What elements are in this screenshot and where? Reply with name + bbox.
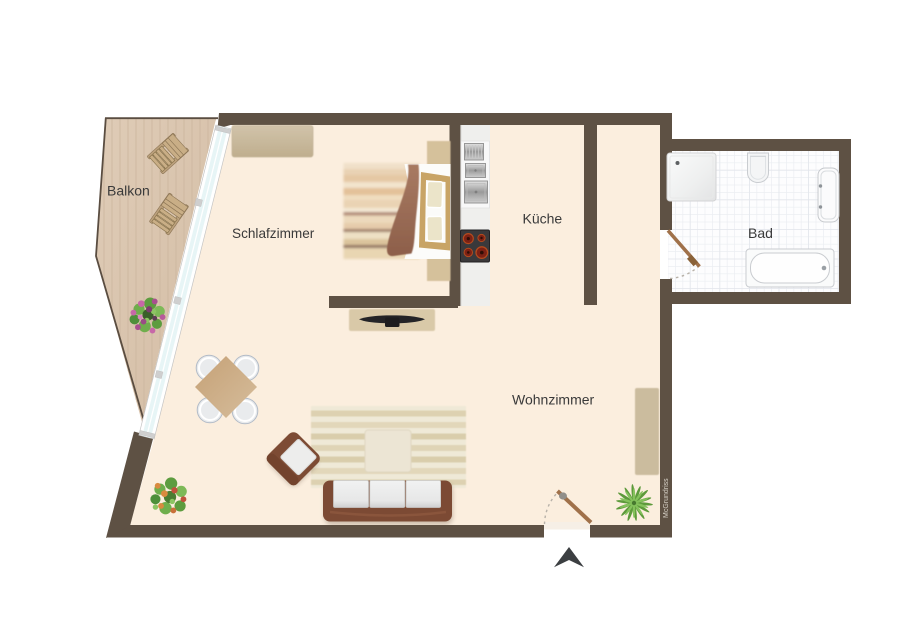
- svg-text:McGrundriss: McGrundriss: [663, 478, 670, 518]
- svg-text:Balkon: Balkon: [107, 183, 150, 199]
- svg-text:Küche: Küche: [523, 211, 563, 227]
- svg-text:Schlafzimmer: Schlafzimmer: [232, 226, 315, 241]
- svg-text:Bad: Bad: [748, 225, 773, 241]
- svg-text:Wohnzimmer: Wohnzimmer: [512, 392, 595, 408]
